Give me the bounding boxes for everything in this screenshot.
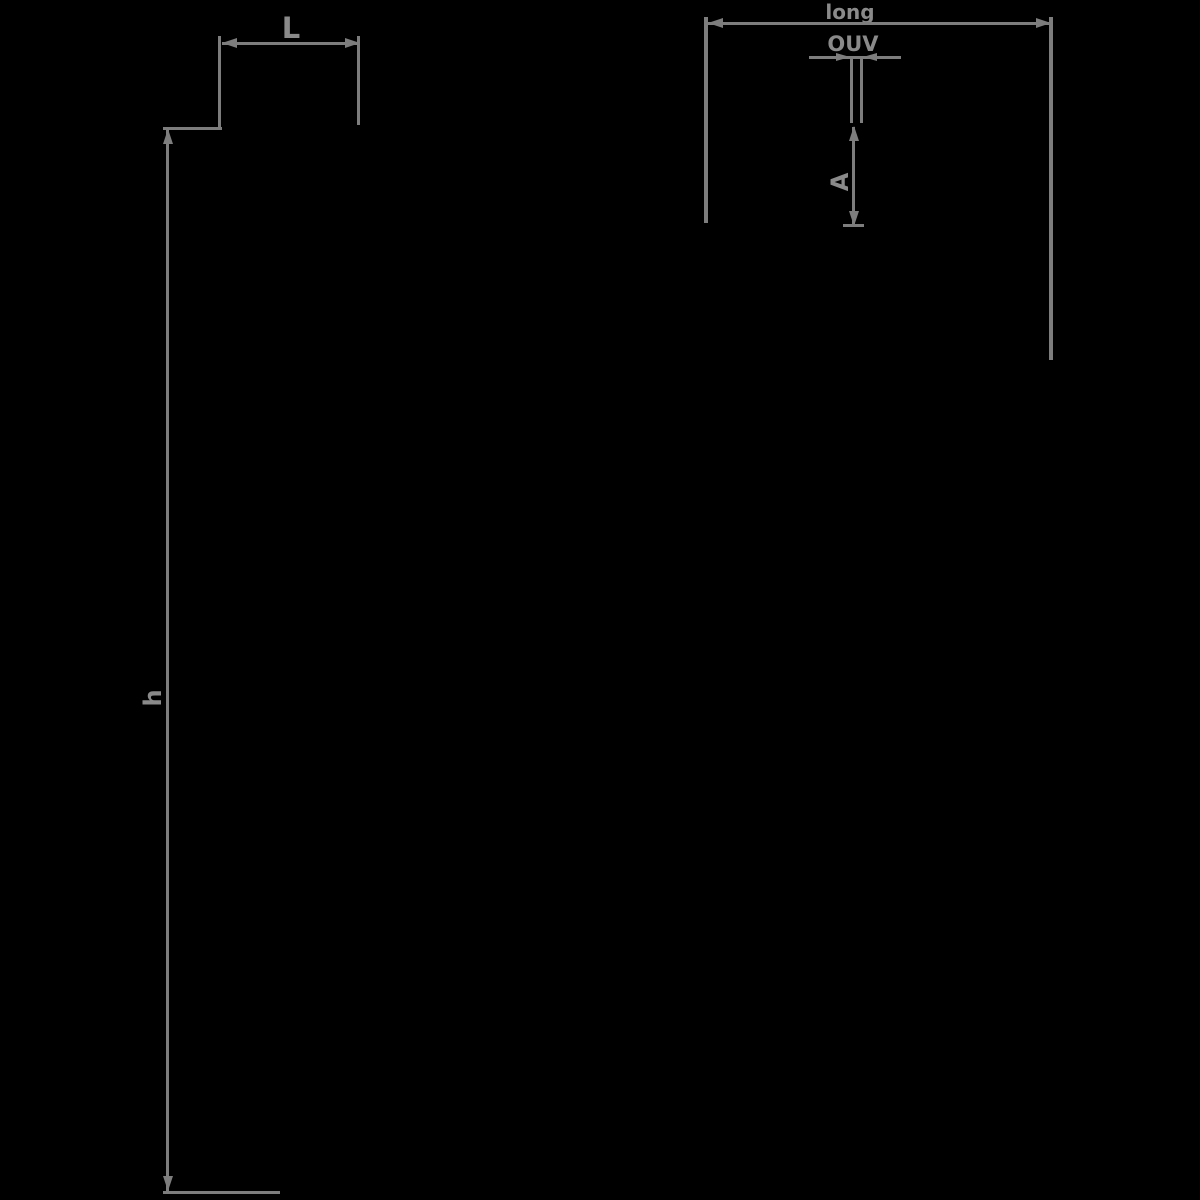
dimension-label-l: L [261,13,321,43]
long-extension-line-left [704,17,708,223]
l-extension-line-right [357,36,360,125]
l-dimension-line [222,42,360,45]
long-extension-line-right [1049,17,1053,360]
long-dimension-line [708,22,1051,25]
dimension-label-ouv: OUV [803,34,903,54]
a-arrow-up-icon [849,126,859,141]
ouv-opening-line-left [850,57,853,123]
h-arrow-up-icon [163,129,173,144]
ouv-arrow-inward-right-icon [863,53,877,61]
ouv-dimension-line [809,56,901,59]
dimension-drawing-canvas: L h long OUV A [0,0,1200,1200]
l-arrow-left-icon [222,38,237,48]
ouv-arrow-inward-left-icon [836,53,850,61]
l-extension-line-left [218,36,221,129]
a-bottom-tick-line [843,224,864,227]
dimension-label-a: A [825,152,855,212]
h-bottom-reference-line [163,1191,280,1194]
h-dimension-line [166,129,169,1191]
long-arrow-left-icon [708,18,723,28]
dimension-label-long: long [810,1,890,24]
dimension-label-h: h [138,668,168,728]
h-arrow-down-icon [163,1176,173,1191]
ouv-opening-line-right [860,57,863,123]
